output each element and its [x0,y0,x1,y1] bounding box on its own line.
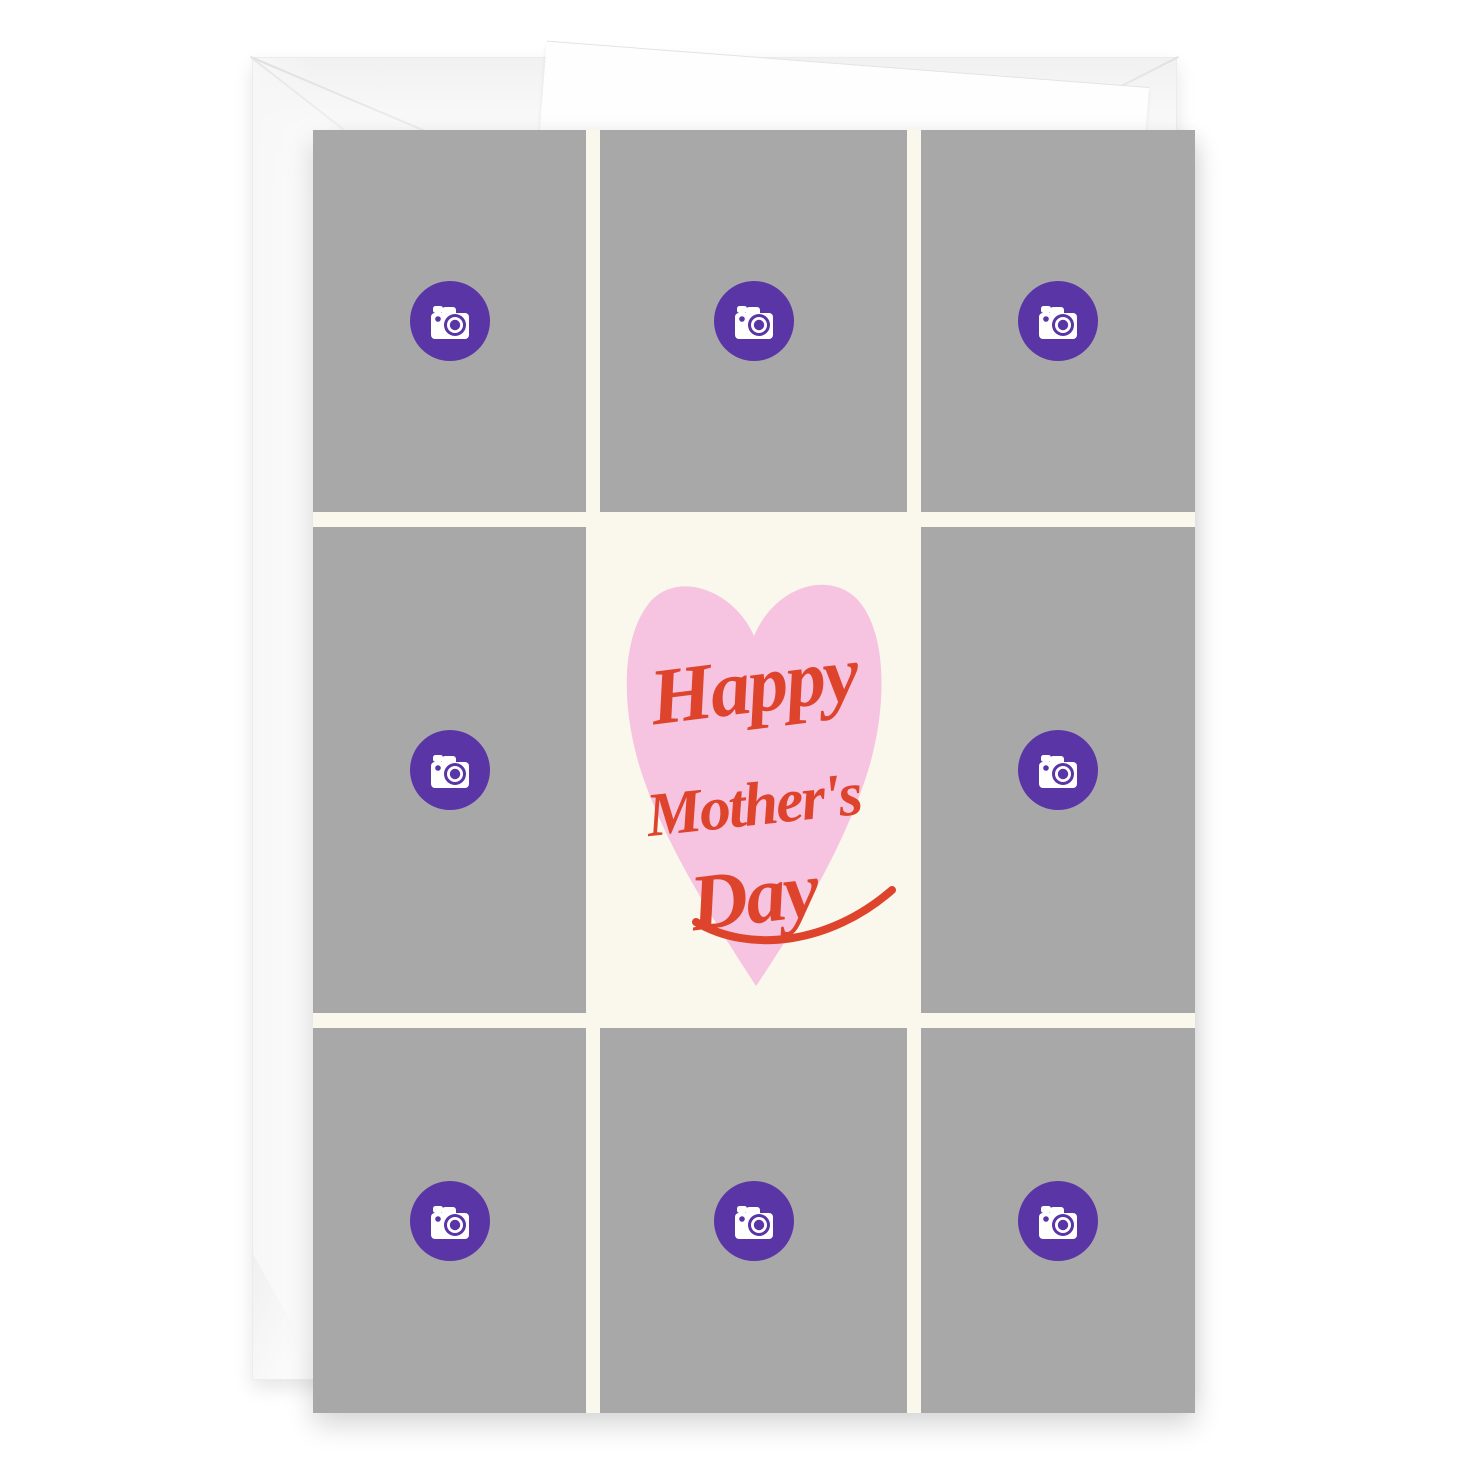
photo-tile[interactable] [600,1028,907,1413]
photo-tile[interactable] [921,130,1195,512]
card-preview-stage: Happy Mother's Day [0,0,1470,1470]
photo-tile[interactable] [313,527,586,1013]
photo-tile[interactable] [313,1028,586,1413]
card-center-panel: Happy Mother's Day [600,527,907,1013]
photo-tile[interactable] [921,527,1195,1013]
add-photo-button[interactable] [410,1181,490,1261]
add-photo-button[interactable] [410,281,490,361]
add-photo-button[interactable] [714,281,794,361]
photo-tile[interactable] [600,130,907,512]
camera-icon [426,746,474,794]
camera-icon [1034,1197,1082,1245]
add-photo-button[interactable] [714,1181,794,1261]
camera-icon [1034,746,1082,794]
add-photo-button[interactable] [1018,730,1098,810]
photo-tile[interactable] [313,130,586,512]
camera-icon [426,1197,474,1245]
camera-icon [1034,297,1082,345]
photo-tile[interactable] [921,1028,1195,1413]
envelope-left-sheen [253,58,313,1379]
camera-icon [730,297,778,345]
add-photo-button[interactable] [1018,281,1098,361]
add-photo-button[interactable] [410,730,490,810]
camera-icon [730,1197,778,1245]
greeting-swash [690,882,900,952]
card-front: Happy Mother's Day [313,130,1195,1413]
add-photo-button[interactable] [1018,1181,1098,1261]
camera-icon [426,297,474,345]
